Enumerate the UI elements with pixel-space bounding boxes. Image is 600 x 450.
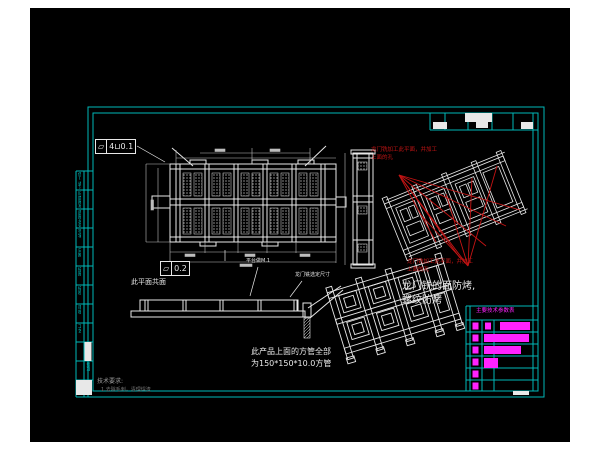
spec-table-header: 主要技术参数表 <box>476 309 515 315</box>
iso-view-2 <box>325 253 465 364</box>
flatness-fcf-top: ▱ 4⊔0.1 <box>95 139 136 154</box>
flatness-symbol: ▱ <box>161 262 172 275</box>
bake-note-line2: 螺纹防烤 <box>402 296 442 307</box>
spec-bar-1 <box>500 322 530 330</box>
left-table-cell: 工艺 <box>77 324 82 341</box>
left-table-cell: 描校 <box>77 286 82 303</box>
red-note-top-line2: 上面的孔 <box>371 156 393 162</box>
tube-note-line1: 此产品上面的方管全部 <box>251 348 331 356</box>
left-table-cell: 日期 <box>77 248 82 265</box>
flatness-symbol: ▱ <box>96 140 107 153</box>
plan-hatch-blocks <box>183 173 318 234</box>
dimension-text-blur <box>245 254 255 257</box>
plan-dimensions <box>146 148 336 267</box>
flatness-fcf-mid: ▱ 0.2 <box>160 261 190 276</box>
dimension-text-blur <box>270 149 280 152</box>
left-table-cell: 旧底图总号 <box>77 191 82 208</box>
left-table-cell: 底图总号 <box>77 210 82 227</box>
iso-view-1 <box>382 149 529 260</box>
left-table-cell: 审核 <box>77 305 82 322</box>
spec-bar-4 <box>484 358 498 368</box>
dimension-text-blur <box>151 200 154 210</box>
left-table-cell: 批准 <box>85 362 90 379</box>
red-note-top-line1: 龙门铣加工此平面，并加工 <box>371 148 437 154</box>
flatness-value: 0.2 <box>172 262 189 275</box>
left-table-cell: 签字 <box>77 229 82 246</box>
dimension-text-blur <box>300 254 310 257</box>
side-view <box>345 150 375 268</box>
red-note-bottom-line2: 上面的孔 <box>407 268 429 274</box>
red-note-bottom-line1: 龙门铣加工此平面，并加工 <box>407 260 473 266</box>
coplanar-note: 此平面共面 <box>131 279 166 286</box>
dimension-text-blur <box>240 264 252 267</box>
tube-note-line2: 为150*150*10.0方管 <box>251 360 331 368</box>
bake-note-line1: 龙门铣的面防烤, <box>402 282 475 293</box>
cad-screenshot: ▱ 4⊔0.1 ▱ 0.2 此平面共面 平台做M.1 龙门铣选定尺寸 龙门铣加工… <box>0 0 600 450</box>
spec-bar-2 <box>484 334 529 342</box>
spec-bar-3 <box>484 346 521 354</box>
gantry-dim-note: 龙门铣选定尺寸 <box>295 273 330 278</box>
tech-req-title: 技术要求: <box>97 379 123 385</box>
platform-note: 平台做M.1 <box>246 259 270 264</box>
dimension-text-blur <box>215 149 225 152</box>
left-table-cell: 描图 <box>77 267 82 284</box>
cad-linework <box>0 0 600 450</box>
dimension-text-blur <box>185 254 195 257</box>
left-table-cell: 借(通)用件登记 <box>77 172 82 189</box>
flatness-value: 4⊔0.1 <box>107 140 135 153</box>
tech-req-line1: 1.去除毛刺，清理焊渣 <box>101 388 151 393</box>
